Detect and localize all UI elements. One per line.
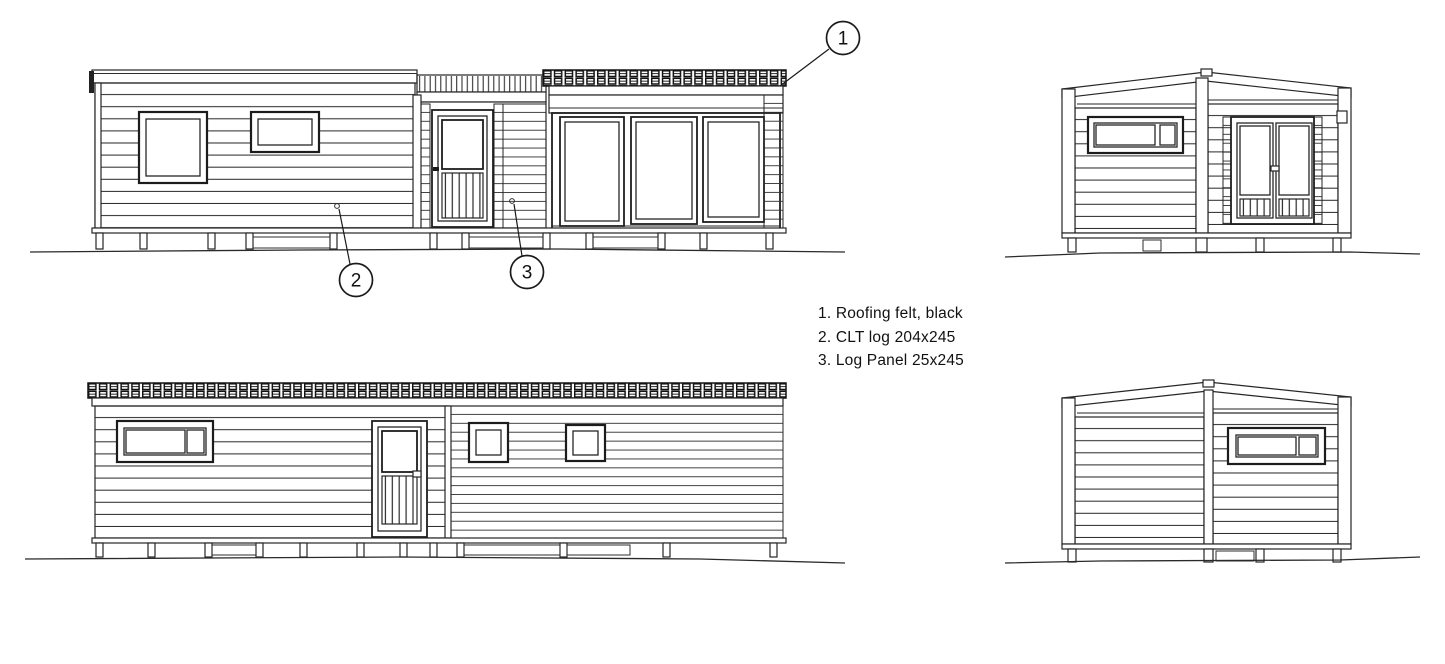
left-side-right-post — [1338, 397, 1351, 544]
ground-line-rear — [25, 557, 845, 563]
log-panel-strip — [503, 104, 546, 228]
french-door-slats-right — [1279, 199, 1309, 216]
front-door-bay — [413, 75, 546, 228]
front-foundation — [92, 228, 786, 249]
front-window-small — [251, 112, 319, 152]
glass-panel-1 — [560, 117, 624, 226]
glazed-bay-corner-strip — [764, 95, 783, 229]
glass-panel-3 — [703, 117, 764, 222]
left-side-back-wall — [1075, 417, 1204, 544]
rear-door — [372, 421, 427, 537]
front-glazed-bay — [543, 70, 786, 229]
glazed-bay-fascia — [549, 86, 783, 95]
legend-item-roofing-felt: 1. Roofing felt, black — [818, 302, 964, 326]
callout-roofing-felt: 1 — [780, 22, 860, 87]
french-door-glass-left — [1240, 126, 1270, 195]
rear-door-slats — [382, 476, 417, 524]
front-main-section — [89, 70, 417, 228]
corner-post-mark — [89, 71, 94, 93]
rear-window-wide — [117, 421, 213, 462]
left-side-foundation — [1062, 544, 1351, 562]
rear-fascia — [92, 398, 783, 406]
rear-door-handle — [413, 471, 421, 477]
front-left-corner-trim — [95, 83, 101, 228]
door-glass — [442, 120, 483, 169]
door-handle — [433, 167, 439, 171]
rear-foundation — [92, 538, 786, 557]
right-side-elevation — [1005, 69, 1420, 257]
left-side-center-seam — [1204, 390, 1213, 544]
side-center-post — [1196, 78, 1208, 233]
drawing-sheet: 1 2 3 — [0, 0, 1445, 664]
ridge-cap — [1201, 69, 1212, 76]
side-right-post — [1338, 88, 1351, 233]
callout-1-number: 1 — [838, 29, 849, 50]
side-foundation — [1062, 233, 1351, 252]
glass-panel-2 — [631, 117, 697, 224]
side-corner-block — [1337, 111, 1347, 123]
entrance-door — [432, 110, 493, 227]
left-side-left-post — [1062, 398, 1075, 544]
door-bay-head-rail — [417, 92, 546, 102]
rear-elevation — [25, 383, 845, 563]
rear-window-square-2 — [566, 425, 605, 461]
legend-item-clt-log: 2. CLT log 204x245 — [818, 326, 964, 350]
callout-2-number: 2 — [351, 271, 362, 292]
rear-section-seam — [445, 406, 451, 538]
section-junction-post — [413, 95, 421, 228]
door-slat-panel — [442, 173, 483, 218]
front-left-fascia — [92, 70, 417, 83]
left-side-ridge-cap — [1203, 380, 1214, 387]
tick-fascia — [417, 75, 546, 92]
legend-item-log-panel: 3. Log Panel 25x245 — [818, 349, 964, 373]
side-window — [1088, 117, 1183, 153]
elevations-svg: 1 2 3 — [0, 0, 1445, 664]
front-window-square — [139, 112, 207, 183]
rear-window-square-1 — [469, 423, 508, 462]
front-elevation: 1 2 3 — [30, 22, 860, 297]
door-side-strip-right — [1314, 117, 1322, 224]
ground-line-front — [30, 249, 845, 252]
rear-roofing-felt-band — [88, 383, 786, 398]
callout-3-number: 3 — [522, 263, 533, 284]
left-side-elevation — [1005, 380, 1420, 563]
rear-door-glass — [382, 431, 417, 472]
log-end-strip-right — [494, 104, 503, 228]
legend: 1. Roofing felt, black 2. CLT log 204x24… — [818, 302, 964, 373]
roofing-felt-band — [543, 70, 786, 86]
french-doors — [1231, 117, 1314, 224]
ground-line-right-side — [1005, 252, 1420, 257]
left-side-window — [1228, 428, 1325, 464]
french-door-glass-right — [1279, 126, 1309, 195]
side-left-post — [1062, 89, 1075, 233]
french-door-handle — [1271, 166, 1279, 171]
glazed-bay-head-rail — [549, 95, 783, 113]
door-side-strip-left — [1223, 117, 1231, 224]
log-end-strip-left — [421, 104, 430, 228]
french-door-slats-left — [1240, 199, 1270, 216]
